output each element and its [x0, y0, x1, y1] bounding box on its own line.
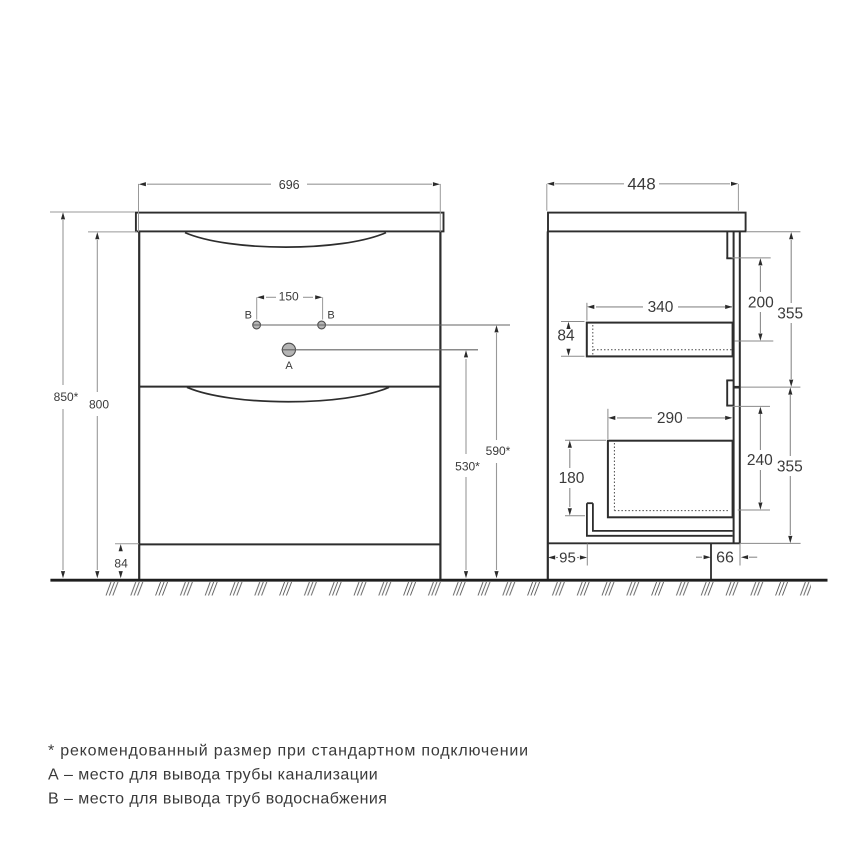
svg-text:В – место для вывода труб водо: В – место для вывода труб водоснабжения: [48, 791, 387, 808]
svg-text:А – место для вывода трубы кан: А – место для вывода трубы канализации: [48, 767, 378, 784]
svg-text:200: 200: [748, 295, 774, 312]
svg-text:800: 800: [89, 398, 109, 412]
svg-text:355: 355: [777, 306, 803, 323]
svg-text:240: 240: [747, 452, 773, 469]
svg-text:* рекомендованный размер при с: * рекомендованный размер при стандартном…: [48, 743, 529, 760]
svg-text:B: B: [327, 309, 334, 321]
svg-text:180: 180: [559, 470, 585, 487]
svg-text:290: 290: [657, 410, 683, 427]
svg-text:530*: 530*: [455, 460, 480, 474]
svg-text:340: 340: [648, 299, 674, 316]
svg-text:84: 84: [114, 557, 128, 571]
svg-text:84: 84: [557, 328, 575, 345]
svg-text:66: 66: [716, 550, 734, 567]
svg-text:95: 95: [559, 550, 576, 567]
svg-text:B: B: [245, 309, 252, 321]
svg-text:696: 696: [279, 178, 300, 192]
svg-text:850*: 850*: [54, 390, 79, 404]
svg-text:590*: 590*: [486, 444, 511, 458]
svg-text:A: A: [285, 360, 293, 372]
svg-text:448: 448: [627, 175, 655, 194]
svg-text:150: 150: [279, 290, 299, 304]
svg-text:355: 355: [777, 459, 803, 476]
